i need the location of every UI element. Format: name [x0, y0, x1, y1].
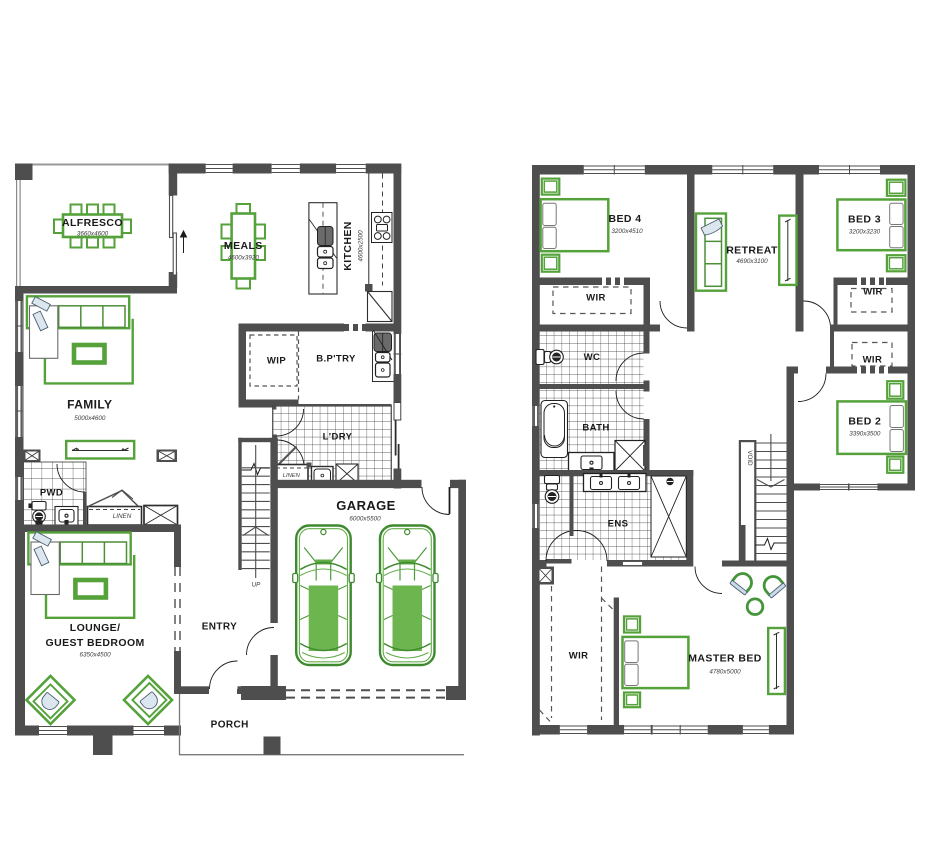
svg-text:FAMILY: FAMILY: [67, 398, 112, 412]
svg-text:GARAGE: GARAGE: [336, 498, 395, 513]
svg-text:KITCHEN: KITCHEN: [342, 221, 354, 270]
svg-text:4690x3100: 4690x3100: [736, 258, 768, 265]
svg-text:3390x3500: 3390x3500: [849, 431, 881, 438]
svg-text:BATH: BATH: [582, 423, 609, 434]
svg-text:LOUNGE/: LOUNGE/: [70, 622, 121, 634]
svg-text:3200x3230: 3200x3230: [849, 229, 881, 236]
svg-text:PWD: PWD: [40, 488, 63, 499]
svg-text:LINEN: LINEN: [113, 513, 132, 520]
svg-text:PORCH: PORCH: [211, 720, 249, 731]
svg-text:6000x5500: 6000x5500: [349, 516, 381, 523]
svg-text:BED 3: BED 3: [848, 214, 881, 226]
svg-text:4600x2500: 4600x2500: [358, 230, 365, 262]
svg-text:VOID: VOID: [746, 450, 753, 466]
svg-text:L'DRY: L'DRY: [323, 432, 353, 443]
svg-text:BED 4: BED 4: [609, 213, 642, 225]
svg-text:4600x3920: 4600x3920: [228, 255, 260, 262]
svg-text:MASTER BED: MASTER BED: [688, 653, 761, 665]
svg-text:BED 2: BED 2: [848, 416, 881, 428]
svg-text:RETREAT: RETREAT: [726, 245, 778, 257]
svg-text:GUEST BEDROOM: GUEST BEDROOM: [46, 637, 145, 649]
svg-text:MEALS: MEALS: [224, 240, 263, 252]
svg-text:WC: WC: [584, 352, 601, 363]
svg-text:3660x4600: 3660x4600: [77, 231, 109, 238]
svg-text:WIR: WIR: [863, 287, 883, 298]
svg-text:ENTRY: ENTRY: [202, 622, 238, 633]
svg-text:B.P'TRY: B.P'TRY: [316, 354, 356, 365]
svg-text:WIR: WIR: [586, 293, 606, 304]
svg-text:WIR: WIR: [569, 651, 589, 662]
svg-text:6350x4500: 6350x4500: [80, 652, 112, 659]
svg-text:4780x5000: 4780x5000: [709, 669, 741, 676]
svg-text:LINEN: LINEN: [283, 473, 301, 479]
svg-text:5000x4600: 5000x4600: [74, 415, 106, 422]
svg-text:UP: UP: [252, 582, 262, 589]
svg-text:ALFRESCO: ALFRESCO: [62, 217, 123, 229]
svg-text:3200x4510: 3200x4510: [611, 228, 643, 235]
svg-text:WIP: WIP: [267, 356, 286, 367]
svg-text:ENS: ENS: [608, 519, 629, 530]
svg-text:WIR: WIR: [863, 355, 883, 366]
